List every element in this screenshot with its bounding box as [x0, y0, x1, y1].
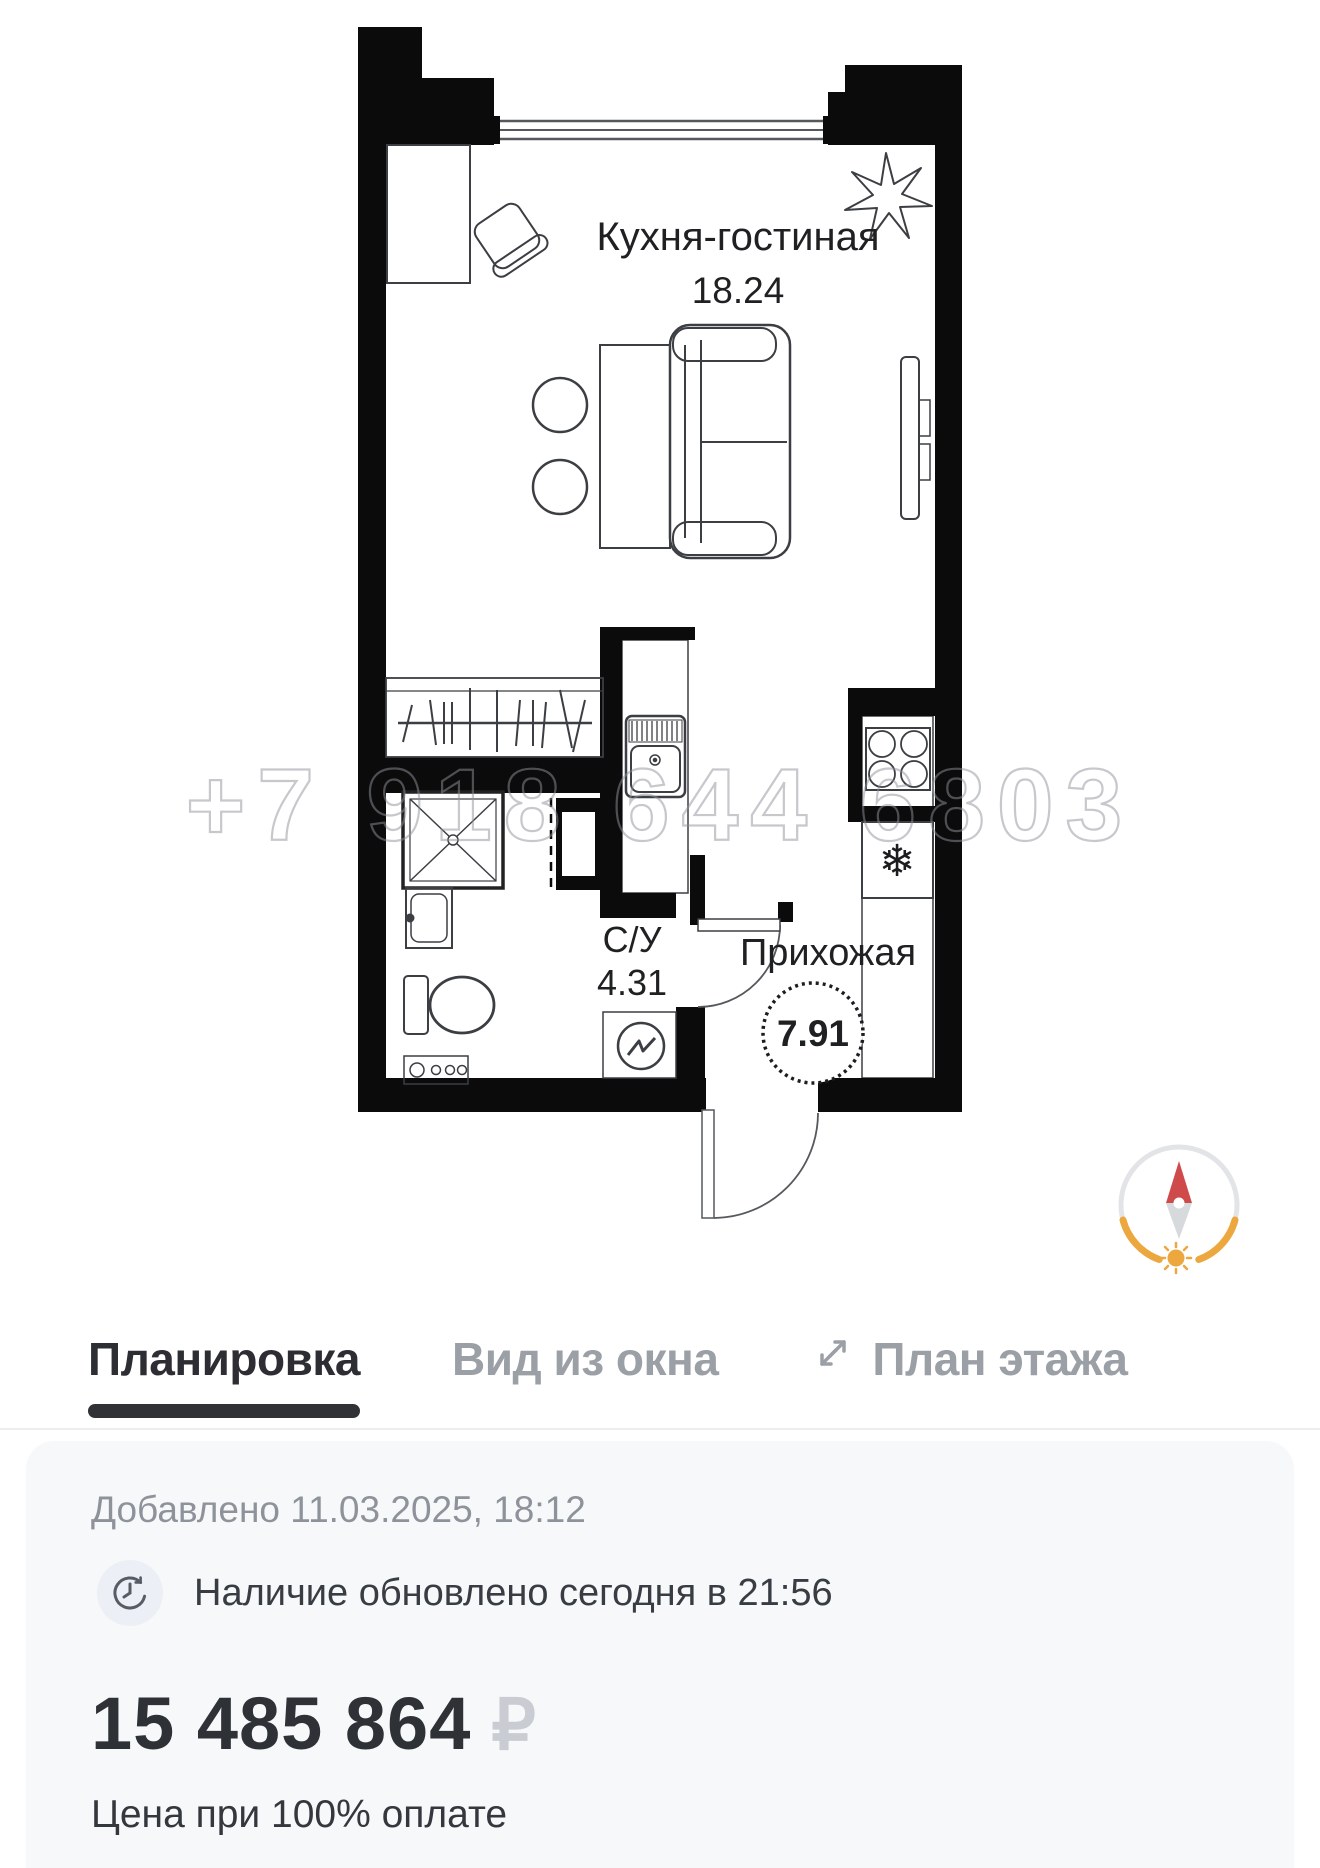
tab-floor-plan-label: План этажа: [872, 1332, 1127, 1386]
electrical-panel-icon: [603, 1012, 676, 1078]
tv: [901, 357, 930, 519]
room-label-bathroom: С/У: [603, 919, 663, 960]
tabs-divider: [0, 1428, 1320, 1430]
clock-refresh-icon: [110, 1573, 150, 1613]
toilet: [404, 976, 494, 1034]
compass-icon: [1121, 1147, 1237, 1273]
price-row: 15 485 864 ₽: [91, 1681, 536, 1766]
entry-door: [702, 1110, 818, 1218]
wardrobe: [386, 678, 603, 757]
stool: [533, 378, 587, 432]
price-note: Цена при 100% оплате: [91, 1793, 507, 1837]
floor-plan: ❄ Кухня-гостиная 18.24 С/У 4.31 Прихожая…: [0, 0, 1320, 1300]
washbasin: [406, 888, 452, 948]
watermark: +7 918 644 6803: [186, 748, 1135, 862]
listing-screen: ❄ Кухня-гостиная 18.24 С/У 4.31 Прихожая…: [0, 0, 1320, 1868]
dining-table: [600, 345, 670, 548]
price-info-card: Добавлено 11.03.2025, 18:12 Наличие обно…: [26, 1441, 1294, 1868]
stamp-area-value: 7.91: [777, 1013, 849, 1054]
office-chair: [467, 197, 551, 280]
area-stamp: 7.91: [763, 983, 863, 1083]
plan-tabs: Планировка Вид из окна План этажа: [88, 1330, 1128, 1387]
window: [489, 116, 834, 144]
price-value: 15 485 864: [91, 1681, 471, 1766]
sun-icon: [1161, 1243, 1191, 1273]
tab-window-view-label: Вид из окна: [452, 1332, 718, 1386]
wall-notch: [828, 65, 845, 92]
currency-symbol: ₽: [491, 1684, 536, 1766]
added-date: Добавлено 11.03.2025, 18:12: [91, 1489, 586, 1531]
room-area-kitchen: 18.24: [692, 270, 785, 311]
room-area-bathroom: 4.31: [597, 962, 667, 1003]
stool: [533, 460, 587, 514]
room-label-kitchen: Кухня-гостиная: [597, 215, 880, 259]
tab-window-view[interactable]: Вид из окна: [452, 1332, 718, 1386]
sofa: [670, 325, 790, 558]
expand-arrows-icon: [810, 1330, 856, 1387]
tab-layout-label: Планировка: [88, 1332, 360, 1386]
tab-floor-plan[interactable]: План этажа: [810, 1330, 1127, 1387]
tab-layout[interactable]: Планировка: [88, 1332, 360, 1386]
availability-text: Наличие обновлено сегодня в 21:56: [194, 1572, 833, 1615]
availability-clock-badge: [97, 1560, 163, 1626]
room-label-hallway: Прихожая: [740, 932, 916, 974]
north-needle: [1166, 1161, 1192, 1239]
desk: [387, 145, 470, 283]
active-tab-underline: [88, 1404, 360, 1418]
